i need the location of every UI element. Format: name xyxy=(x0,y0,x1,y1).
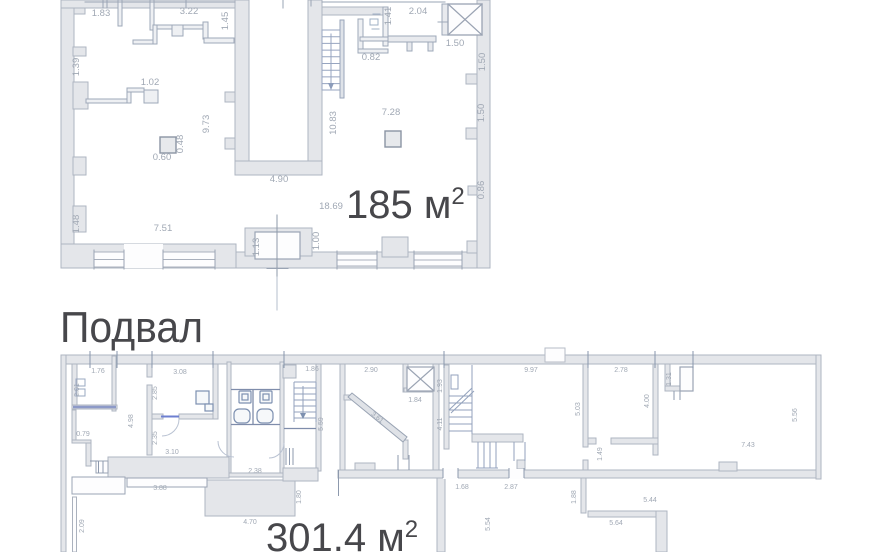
svg-text:4.11: 4.11 xyxy=(437,417,444,430)
svg-text:1.50: 1.50 xyxy=(476,104,487,123)
svg-text:4.70: 4.70 xyxy=(243,519,257,526)
svg-text:2.85: 2.85 xyxy=(152,386,159,400)
svg-text:1.39: 1.39 xyxy=(71,58,82,77)
svg-text:1.50: 1.50 xyxy=(477,53,488,72)
svg-text:10.83: 10.83 xyxy=(328,111,339,135)
svg-text:5.64: 5.64 xyxy=(609,520,623,527)
svg-text:1.83: 1.83 xyxy=(92,8,111,19)
svg-text:0.48: 0.48 xyxy=(175,135,186,154)
svg-text:1.76: 1.76 xyxy=(91,368,105,375)
svg-text:0.79: 0.79 xyxy=(76,431,90,438)
svg-text:2.35: 2.35 xyxy=(152,431,159,445)
svg-text:5.44: 5.44 xyxy=(643,497,657,504)
svg-text:3.22: 3.22 xyxy=(180,6,199,17)
svg-text:1.88: 1.88 xyxy=(571,490,578,504)
svg-text:Подвал: Подвал xyxy=(60,303,203,352)
svg-text:1.45: 1.45 xyxy=(220,12,231,31)
svg-text:5.54: 5.54 xyxy=(485,517,492,531)
svg-text:0.82: 0.82 xyxy=(362,52,381,63)
svg-text:1.48: 1.48 xyxy=(71,215,82,234)
svg-text:2.01: 2.01 xyxy=(74,383,81,397)
svg-text:3.10: 3.10 xyxy=(165,449,179,456)
svg-text:1.00: 1.00 xyxy=(311,232,322,251)
svg-text:301.4 м2: 301.4 м2 xyxy=(266,516,418,552)
svg-text:1.41: 1.41 xyxy=(383,7,394,26)
svg-text:0.86: 0.86 xyxy=(476,181,487,200)
svg-text:7.51: 7.51 xyxy=(154,223,173,234)
svg-text:5.59: 5.59 xyxy=(318,417,325,431)
svg-text:5.03: 5.03 xyxy=(575,402,582,416)
svg-text:4.00: 4.00 xyxy=(644,394,651,408)
svg-text:7.43: 7.43 xyxy=(741,442,755,449)
svg-text:7.28: 7.28 xyxy=(382,107,401,118)
svg-text:3.08: 3.08 xyxy=(173,369,187,376)
svg-text:4.90: 4.90 xyxy=(270,174,289,185)
svg-text:2.38: 2.38 xyxy=(248,468,262,475)
svg-text:3.88: 3.88 xyxy=(153,485,167,492)
svg-text:1.68: 1.68 xyxy=(455,484,469,491)
svg-text:2.87: 2.87 xyxy=(504,484,518,491)
svg-text:5.56: 5.56 xyxy=(792,408,799,422)
svg-text:1.86: 1.86 xyxy=(305,366,319,373)
svg-text:1.49: 1.49 xyxy=(597,447,604,461)
svg-text:2.78: 2.78 xyxy=(614,367,628,374)
svg-text:2.04: 2.04 xyxy=(409,6,428,17)
svg-text:1.84: 1.84 xyxy=(408,397,422,404)
svg-text:1.02: 1.02 xyxy=(141,77,160,88)
svg-text:2.90: 2.90 xyxy=(364,367,378,374)
svg-text:9.97: 9.97 xyxy=(524,367,538,374)
svg-text:1.93: 1.93 xyxy=(437,379,444,393)
svg-text:1.13: 1.13 xyxy=(251,238,262,257)
svg-text:0.60: 0.60 xyxy=(153,152,172,163)
svg-text:185 м2: 185 м2 xyxy=(346,183,465,227)
svg-text:1.50: 1.50 xyxy=(446,38,465,49)
svg-text:1.31: 1.31 xyxy=(666,372,673,386)
svg-text:1.80: 1.80 xyxy=(296,490,303,504)
svg-text:9.73: 9.73 xyxy=(201,115,212,134)
svg-text:2.09: 2.09 xyxy=(79,519,86,533)
svg-text:18.69: 18.69 xyxy=(319,201,343,212)
svg-text:4.98: 4.98 xyxy=(128,414,135,428)
